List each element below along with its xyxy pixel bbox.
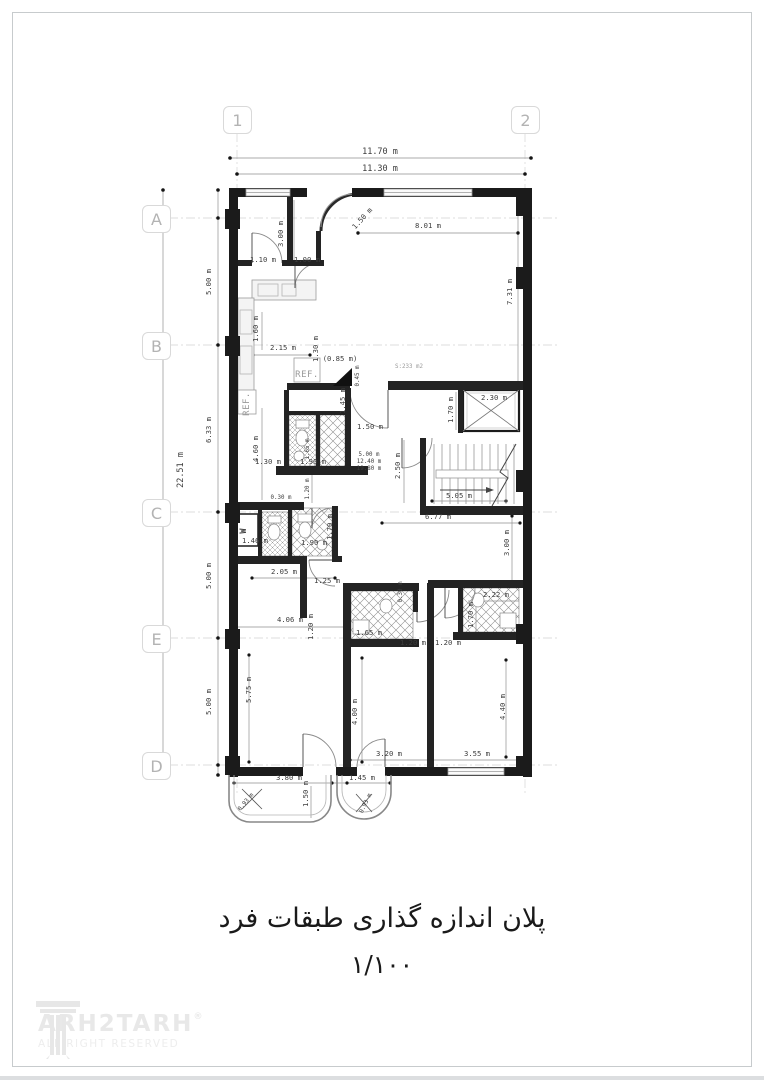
dimension-label: 4.40 m (498, 694, 507, 720)
dimension-label: (0.85 m) (323, 354, 358, 363)
dimension-label: 2.05 m (271, 567, 297, 576)
dimension-label: 5.00 m (204, 563, 213, 589)
grid-row-bubble-e: E (142, 625, 171, 653)
dimension-label: S:233 m2 (395, 364, 423, 370)
dimension-label: 1.30 m (311, 336, 320, 362)
dimension-label: 5.00 m (204, 269, 213, 295)
dimension-label: 3.00 m (502, 530, 511, 556)
dimension-label: 19.80 m (357, 466, 382, 472)
dimension-label: 8.01 m (415, 221, 441, 230)
dimension-label: 0.30 m (271, 495, 292, 501)
dimension-label: 2.22 m (483, 590, 509, 599)
dimension-label: 0.93 m (237, 792, 255, 812)
exterior-walls (225, 188, 532, 777)
dimension-label: 3.80 m (276, 773, 302, 782)
dimension-label: 1.50 m (357, 422, 383, 431)
dimension-label: 1.90 m (301, 538, 327, 547)
grid-row-bubble-b: B (142, 332, 171, 360)
registered-mark: ® (193, 1012, 202, 1022)
grid-column-label: 1 (232, 111, 242, 130)
dimension-label: 7.31 m (505, 279, 514, 305)
column-icon (36, 999, 82, 1059)
dimension-label: 1.45 m (338, 388, 347, 414)
dimension-label: 1.20 m (435, 638, 461, 647)
plan-scale: ۱/۱۰۰ (212, 950, 552, 979)
logo: ARH2TARH® ALL RIGHT RESERVED (36, 999, 202, 1050)
windows (246, 189, 504, 775)
dimension-label: 1.00 m (294, 255, 320, 264)
dimension-label: 4.06 m (277, 615, 303, 624)
dimension-label: 1.46 m (242, 536, 268, 545)
dimension-label: 1.90 m (300, 457, 326, 466)
dimension-label: 6.33 m (204, 417, 213, 443)
dimension-label: 1.10 m (250, 255, 276, 264)
dimension-label: 1.20 m (305, 478, 311, 499)
dimension-label: 6.77 m (425, 512, 451, 521)
dimension-label: 11.30 m (362, 164, 398, 174)
dimension-label: 1.60 m (251, 316, 260, 342)
dimension-label: 0.30 m (398, 581, 404, 602)
dimension-label: 1.20 m (400, 638, 426, 647)
dimension-label: 5.75 m (244, 677, 253, 703)
plan-title: پلان اندازه گذاری طبقات فرد (212, 903, 552, 934)
dimension-label: 12.40 m (357, 459, 382, 465)
sheet-edge-strip (0, 1076, 764, 1080)
dimension-label: 1.65 m (356, 628, 382, 637)
dimension-label: 4.00 m (350, 699, 359, 725)
grid-row-label: A (151, 210, 162, 229)
grid-row-label: D (150, 757, 162, 776)
dimension-label: 3.55 m (464, 749, 490, 758)
dimension-label: 2.50 m (393, 453, 402, 479)
dimension-label: 5.05 m (446, 491, 472, 500)
grid-row-label: B (151, 337, 162, 356)
dimension-label: 5.00 m (204, 689, 213, 715)
dimension-label: W (239, 528, 249, 534)
dimension-label: 1.50 m (301, 781, 310, 807)
dimension-label: REF. (242, 392, 252, 416)
grid-column-bubble-1: 1 (223, 106, 252, 134)
dimension-label: 1.30 m (255, 457, 281, 466)
grid-row-bubble-c: C (142, 499, 171, 527)
dimension-label: 1.70 m (466, 602, 475, 628)
grid-row-bubble-d: D (142, 752, 171, 780)
grid-column-bubble-2: 2 (511, 106, 540, 134)
dimension-label: 2.30 m (481, 393, 507, 402)
grid-row-bubble-a: A (142, 205, 171, 233)
dimension-label: 1.45 m (349, 773, 375, 782)
dimension-label: 1.20 m (306, 614, 315, 640)
dimension-label: 22.51 m (176, 452, 186, 488)
dimension-label: 1.65 m (305, 438, 311, 459)
dimension-label: 1.25 m (314, 576, 340, 585)
dimension-label: 11.70 m (362, 147, 398, 157)
dimension-label: 1.70 m (325, 514, 334, 540)
dimension-label: 2.15 m (270, 343, 296, 352)
grid-row-label: C (151, 504, 162, 523)
grid-row-label: E (151, 630, 161, 649)
dimension-label: 3.00 m (276, 221, 285, 247)
grid-column-label: 2 (520, 111, 530, 130)
dimension-label: 5.00 m (359, 452, 380, 458)
drawing-sheet: { "title": { "plan_fa": "پلان اندازه گذا… (0, 0, 764, 1080)
dimension-label: 3.20 m (376, 749, 402, 758)
dimension-label: REF. (295, 370, 319, 380)
dimension-label: 1.70 m (446, 397, 455, 423)
dimension-label: 0.45 m (355, 365, 361, 386)
dimension-label: 1.50 m (350, 206, 374, 231)
